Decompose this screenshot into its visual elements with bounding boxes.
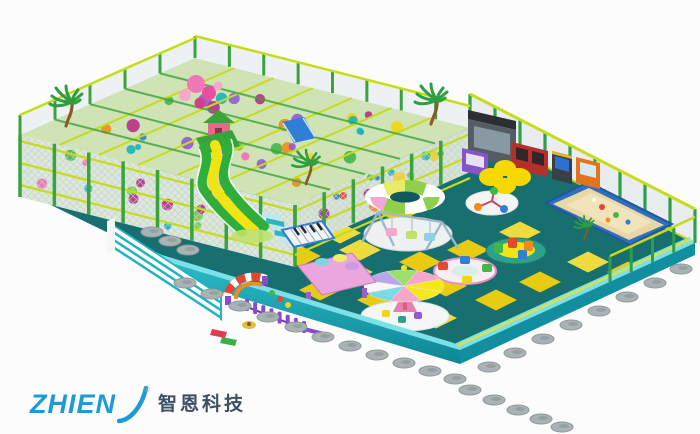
table-leg (362, 288, 367, 298)
arch-ball (277, 296, 283, 302)
barrel (494, 243, 503, 253)
step-disc-detail (559, 424, 569, 428)
step-disc-detail (596, 308, 606, 312)
step-disc-detail (624, 294, 634, 298)
step-disc-detail (347, 343, 357, 347)
step-disc-detail (209, 291, 219, 295)
playground-scene (0, 0, 700, 434)
barrel (518, 250, 527, 259)
step-disc-detail (149, 229, 159, 233)
brand-logo: ZHIEN ® 智恩科技 (30, 383, 246, 425)
donut-segment (385, 187, 405, 190)
step-disc-detail (491, 397, 501, 401)
donut-segment (377, 197, 385, 204)
ride-pod (438, 262, 448, 270)
step-disc-detail (293, 324, 303, 328)
spinner-seat (500, 205, 508, 213)
table-tube (345, 262, 359, 270)
play-element (126, 145, 135, 154)
play-element (356, 128, 363, 135)
donut-segment (385, 204, 405, 207)
step-disc-detail (320, 334, 330, 338)
white-pad (466, 191, 518, 215)
step-disc-detail (512, 350, 522, 354)
playground-render: ZHIEN ® 智恩科技 (0, 0, 700, 434)
step-disc-detail (182, 280, 192, 284)
step-disc-detail (401, 360, 411, 364)
swing-seat (424, 233, 435, 241)
carousel-seat (414, 312, 422, 319)
logo-registered-mark: ® (144, 385, 150, 394)
arcade-machine-dark (552, 151, 572, 184)
logo-company-text: 智恩科技 (158, 395, 246, 414)
donut-segment (377, 190, 385, 197)
swing-seat (406, 231, 417, 239)
step-disc-detail (452, 376, 462, 380)
pod-track-center (451, 266, 479, 277)
step-disc-detail (237, 303, 247, 307)
sand-toy (613, 212, 619, 218)
canopy-top-knob (401, 265, 407, 271)
step-disc-detail (185, 247, 195, 251)
sand-toy (592, 198, 596, 202)
ride-pod (460, 256, 470, 264)
shoe-rack-endcap (107, 218, 115, 253)
slide-landing-pad (231, 229, 273, 243)
snack-plate (242, 321, 256, 329)
carousel-seat (398, 316, 406, 323)
clover-leaf (494, 160, 516, 176)
donut-ring (365, 181, 445, 213)
step-disc-detail (652, 280, 662, 284)
donut-segment (425, 197, 433, 204)
barrel (508, 238, 517, 248)
logo-swoosh-icon: ® (117, 384, 151, 424)
ride-pod (482, 264, 492, 272)
play-element (127, 119, 140, 132)
plate-center (247, 322, 251, 326)
step-disc-detail (427, 368, 437, 372)
flower (187, 75, 205, 93)
step-disc-detail (678, 266, 688, 270)
step-disc-detail (515, 407, 525, 411)
play-element (241, 152, 249, 160)
carousel-seat (382, 310, 390, 317)
donut-segment (405, 187, 425, 190)
barrel (524, 241, 533, 251)
umbrella-canopy (364, 270, 444, 302)
fence-picket (253, 302, 257, 314)
flower (214, 82, 223, 91)
barrel-ride (486, 238, 546, 264)
ride-pod (462, 276, 472, 284)
step-disc-detail (486, 364, 496, 368)
step-disc-detail (374, 352, 384, 356)
step-disc-detail (538, 416, 548, 420)
sand-toy (606, 218, 611, 223)
arch-ball (269, 290, 275, 296)
sand-toy (625, 219, 630, 224)
arch-ball (285, 302, 291, 308)
flower (202, 86, 216, 100)
flower (179, 89, 191, 101)
spinner-seat (474, 203, 482, 211)
donut-hole (390, 192, 420, 203)
table-tube (315, 258, 329, 266)
step-disc-detail (467, 387, 477, 391)
play-element (135, 144, 141, 150)
step-disc-detail (540, 336, 550, 340)
donut-segment (405, 204, 425, 207)
step-disc-detail (568, 322, 578, 326)
kids-shoes (210, 329, 237, 346)
step-disc-detail (167, 238, 177, 242)
swing-seat (386, 228, 397, 236)
arch-post (262, 276, 268, 285)
flower (195, 98, 206, 109)
spinner-seat (490, 187, 498, 195)
table-tube (333, 254, 347, 262)
sand-toy (599, 204, 605, 210)
logo-brand-text: ZHIEN (30, 391, 116, 418)
play-element (289, 143, 296, 150)
donut-segment (425, 190, 433, 197)
shoe-red (210, 329, 227, 338)
shoe-green (220, 337, 237, 346)
step-disc-detail (265, 314, 275, 318)
